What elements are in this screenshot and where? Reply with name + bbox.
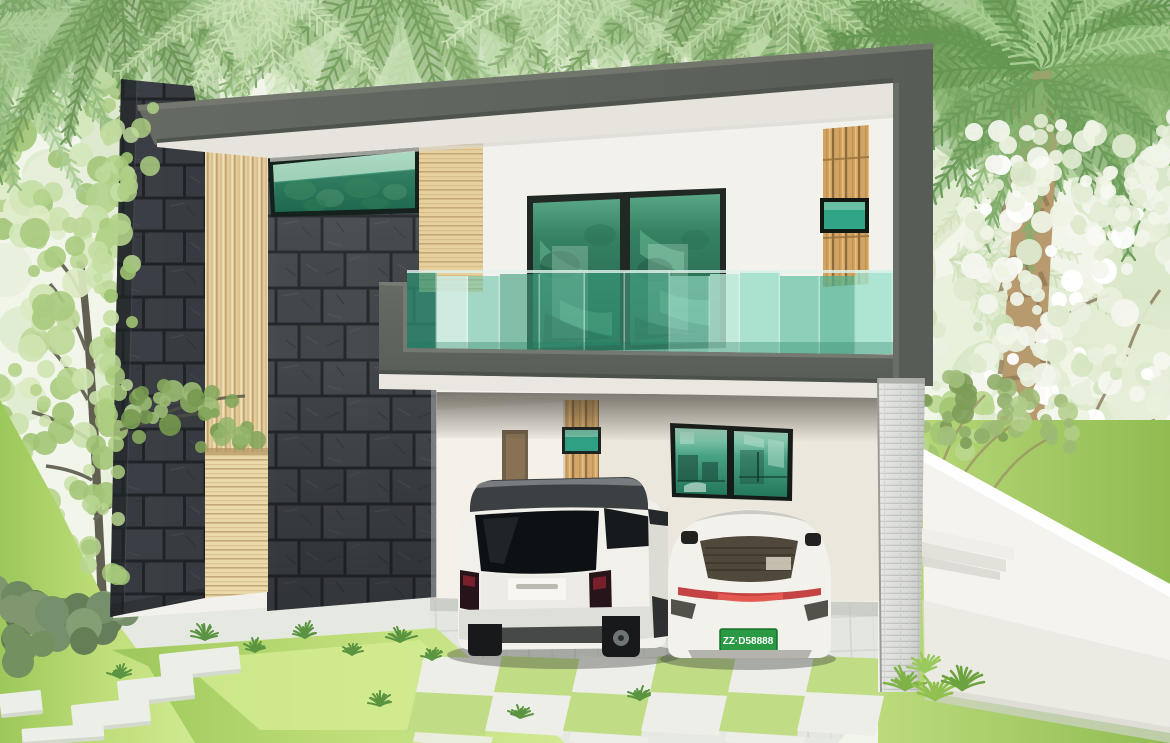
svg-text:ZZ·D58888: ZZ·D58888 (723, 636, 774, 647)
